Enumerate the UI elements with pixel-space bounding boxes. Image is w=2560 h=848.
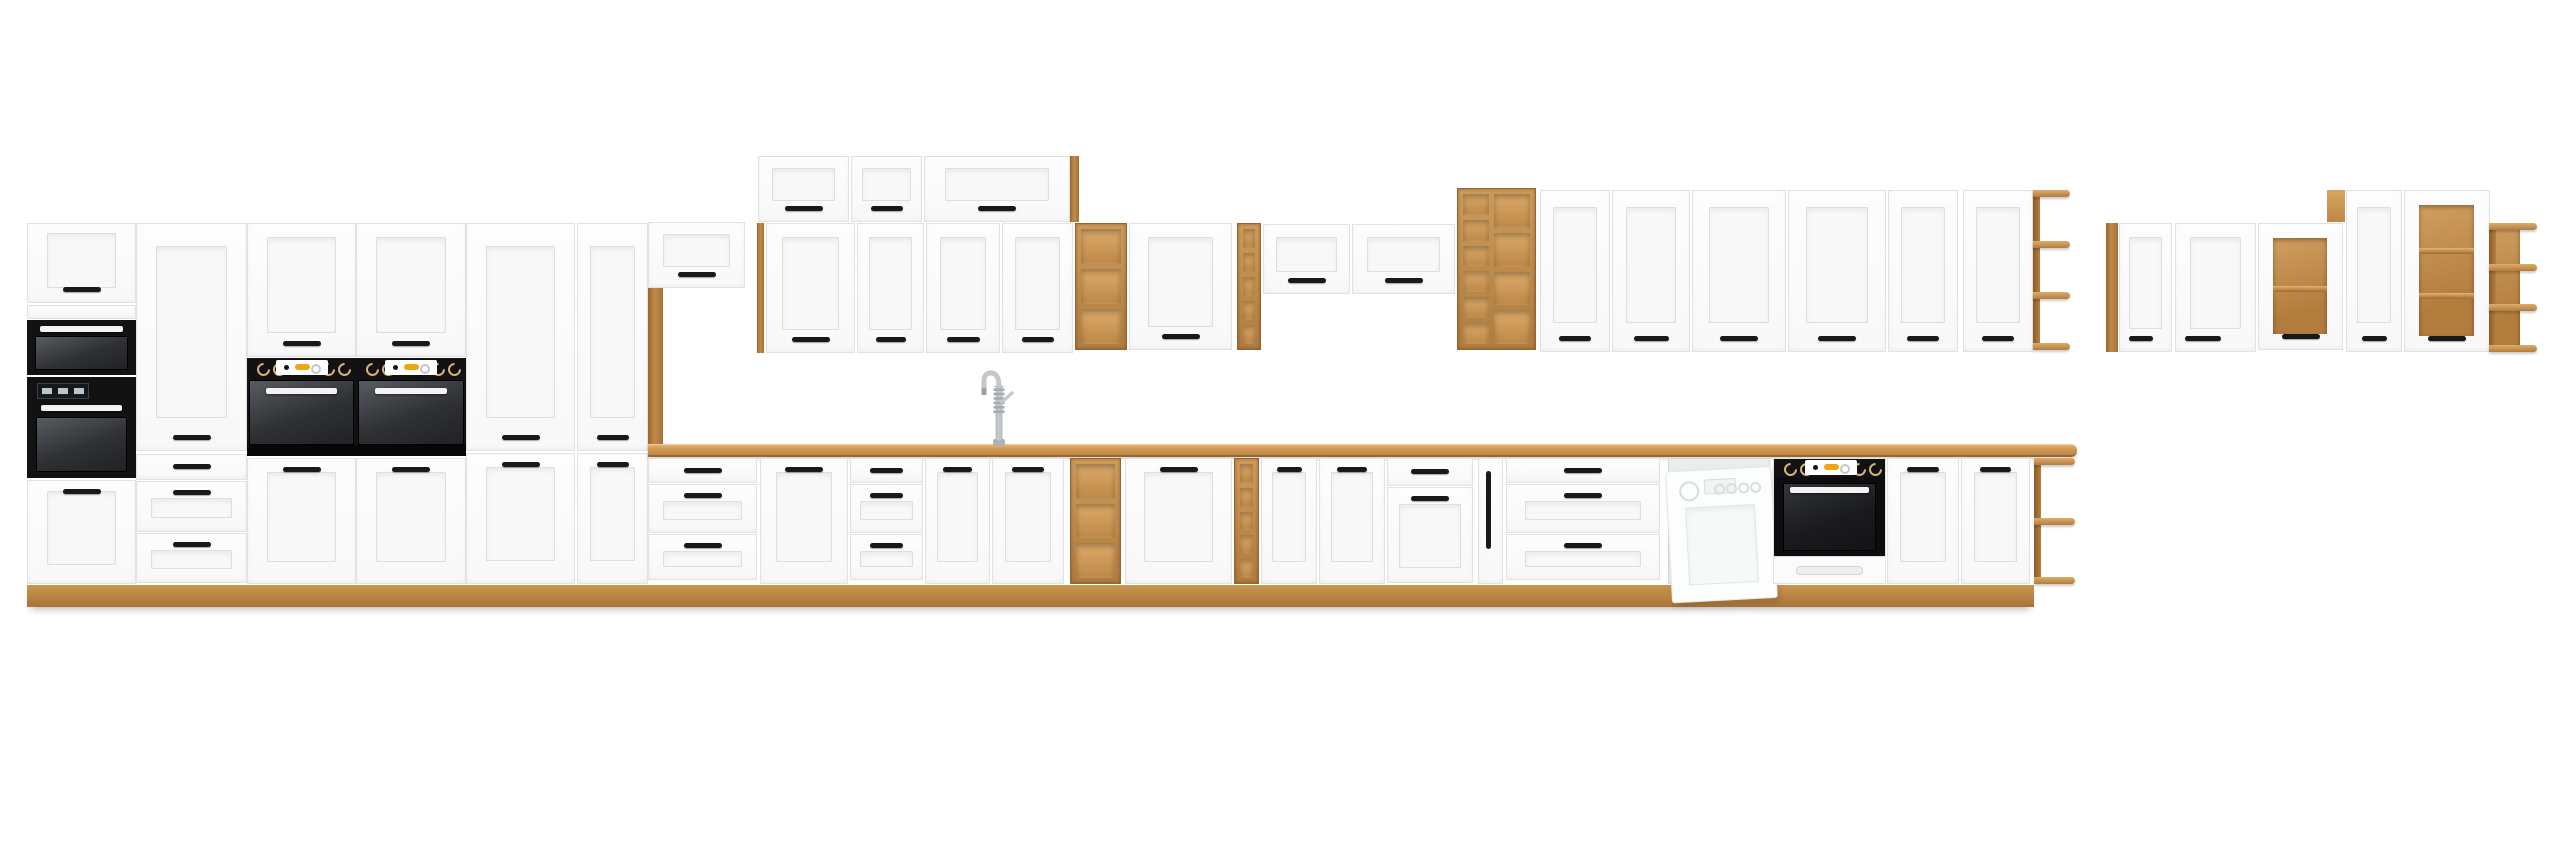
display-segment	[74, 388, 84, 394]
bar-handle-icon	[173, 435, 211, 440]
bar-handle-icon	[1411, 469, 1449, 474]
door-panel	[1367, 237, 1440, 272]
shelf-cubby	[1243, 229, 1255, 248]
shelf-cubby	[1081, 229, 1121, 264]
door-panel	[940, 237, 986, 330]
bar-handle-icon	[684, 468, 722, 473]
door-panel	[1144, 472, 1213, 562]
oven-door-glass	[1783, 483, 1876, 551]
door-panel	[1974, 472, 2017, 562]
wall-door-11	[1963, 190, 2033, 352]
door-panel	[1399, 504, 1461, 568]
shelf-board	[2033, 190, 2070, 197]
bar-handle-icon	[1982, 336, 2014, 341]
bar-handle-icon	[947, 337, 980, 342]
door-panel	[1976, 207, 2020, 323]
oven-handle-bar	[266, 388, 337, 394]
drawer-front	[1387, 487, 1473, 583]
wall-door-9	[1788, 190, 1886, 352]
base-door-1	[760, 458, 848, 584]
microwave-door-glass	[35, 336, 128, 370]
glass-shelf	[2419, 248, 2474, 254]
shelf-column	[1076, 464, 1115, 578]
drawer-front	[1387, 458, 1473, 486]
wall-rack-1	[1237, 223, 1261, 350]
recessed-grip	[1796, 566, 1863, 575]
bar-handle-icon	[1564, 493, 1602, 498]
wall-door-3	[926, 223, 1000, 353]
door-panel	[945, 168, 1049, 201]
bar-handle-icon	[283, 467, 321, 472]
base-rack-1	[1234, 458, 1259, 584]
bar-handle-icon	[173, 464, 211, 469]
bar-handle-icon	[1564, 543, 1602, 548]
bar-handle-icon	[502, 435, 540, 440]
bar-handle-icon	[1288, 278, 1326, 283]
shelf-cubby	[1243, 277, 1255, 296]
oven-knob-icon	[445, 360, 463, 378]
bar-handle-icon	[785, 467, 823, 472]
bar-handle-icon	[1720, 336, 1758, 341]
bar-handle-icon	[1337, 467, 1367, 472]
tall-a3-oven	[247, 358, 356, 456]
fr-glass-cab-1	[2258, 223, 2343, 350]
door-panel	[862, 168, 911, 201]
bar-handle-icon	[2362, 336, 2387, 341]
shelf-column	[1240, 464, 1253, 578]
shelf-column	[1494, 194, 1530, 344]
shelf-cubby	[1463, 194, 1489, 215]
door-panel	[1525, 501, 1641, 520]
door-panel	[486, 467, 555, 561]
faucet-icon	[979, 356, 1019, 446]
microwave-handle-bar	[40, 326, 123, 332]
tall-a4-door	[356, 223, 466, 357]
wall-door-5	[1129, 223, 1232, 350]
wall-door-10	[1888, 190, 1958, 352]
bar-handle-icon	[870, 493, 903, 498]
bar-handle-icon	[684, 493, 722, 498]
bar-handle-icon	[684, 543, 722, 548]
door-panel	[860, 501, 913, 520]
door-panel	[860, 551, 913, 567]
fr-corner-shelf	[2489, 223, 2537, 352]
door-panel	[151, 498, 232, 518]
bar-handle-icon	[785, 206, 823, 211]
shelf-board	[2034, 518, 2075, 525]
drawer-front	[648, 484, 757, 533]
drawer-front	[136, 481, 247, 532]
door-panel	[663, 551, 742, 567]
base-door-6	[1961, 458, 2030, 584]
tall-a1-top-door	[27, 223, 136, 303]
tall-a1-bottom-door	[27, 480, 136, 584]
door-panel	[156, 246, 227, 418]
fr-door-2	[2175, 223, 2256, 352]
tall-a2-door	[136, 223, 247, 451]
door-panel	[1806, 207, 1868, 323]
oven-control-panel	[356, 358, 466, 378]
dishwasher-door-panel	[1685, 504, 1759, 586]
bar-handle-icon	[2428, 336, 2466, 341]
bar-handle-icon	[597, 462, 629, 467]
shelf-board	[2489, 223, 2537, 230]
oven-control-panel	[1774, 459, 1885, 477]
tall-a5-bottom-door	[466, 453, 575, 584]
bar-handle-icon	[392, 341, 430, 346]
door-panel	[663, 234, 730, 267]
door-panel	[376, 472, 446, 562]
tall-a4-bottom-door	[356, 458, 466, 584]
bar-handle-icon	[1160, 467, 1198, 472]
bar-handle-icon	[871, 206, 903, 211]
drawer-front	[648, 458, 757, 483]
bar-handle-icon	[1634, 336, 1669, 341]
bar-handle-icon	[1818, 336, 1856, 341]
shelf-board	[2033, 343, 2070, 350]
door-panel	[1148, 237, 1213, 327]
wall-door-7	[1612, 190, 1690, 352]
bar-handle-icon	[1980, 467, 2011, 472]
bar-handle-icon	[943, 467, 972, 472]
fr-door-3	[2346, 190, 2402, 352]
door-panel	[151, 550, 232, 569]
door-panel	[376, 237, 446, 333]
shelf-cubby	[1243, 301, 1255, 320]
door-panel	[47, 233, 116, 288]
bar-handle-icon	[2129, 336, 2153, 341]
shelf-side-panel	[2489, 223, 2496, 352]
shelf-side-panel	[2033, 190, 2040, 350]
base-drawers-1	[648, 458, 757, 584]
oven-knob-icon	[254, 360, 272, 378]
bar-handle-icon	[1411, 496, 1449, 501]
shelf-board	[2034, 577, 2075, 584]
oven-knob-icon	[1866, 460, 1884, 478]
shelf-cubby	[1463, 220, 1489, 241]
oven-door-glass	[249, 380, 354, 445]
display-segment	[58, 388, 68, 394]
shelf-cubby	[1076, 464, 1115, 499]
fr-door-1	[2119, 223, 2172, 352]
wall-hcab-2	[1352, 224, 1455, 294]
fr-oak-filler	[2327, 190, 2345, 222]
wall-door-2	[857, 223, 924, 353]
oven-knob-icon	[363, 360, 381, 378]
wall-corner-shelf	[2033, 190, 2070, 350]
cargo-handle	[1486, 471, 1491, 549]
shelf-cubby	[1494, 194, 1530, 228]
drawer-front	[850, 484, 923, 533]
dishwasher-button-icon	[1738, 482, 1750, 494]
door-panel	[590, 467, 635, 561]
door-panel	[1015, 237, 1060, 330]
display-ring-icon	[1840, 464, 1850, 474]
shelf-board	[2033, 241, 2070, 248]
door-panel	[869, 237, 912, 330]
door-panel	[1272, 472, 1306, 562]
bar-handle-icon	[978, 206, 1016, 211]
shelf-cubby	[1463, 297, 1489, 318]
wall-oak-side	[757, 223, 764, 353]
sink-door-right	[992, 458, 1064, 584]
display-ring-icon	[311, 364, 321, 374]
drawer-front	[1506, 484, 1660, 533]
door-panel	[590, 246, 635, 418]
shelf-cubby	[1240, 512, 1253, 531]
door-panel	[1709, 207, 1769, 323]
niche-oak-pillar	[648, 288, 663, 444]
bar-handle-icon	[1385, 278, 1423, 283]
door-panel	[937, 472, 978, 562]
base-drawers-3	[1506, 458, 1660, 584]
base-cargo-pullout	[1478, 458, 1503, 584]
dishwasher-button-icon	[1726, 483, 1738, 495]
door-panel	[2129, 237, 2162, 329]
glass-shelf	[2273, 286, 2327, 292]
door-panel	[772, 168, 835, 201]
door-panel	[1900, 472, 1946, 562]
upper-oak-panel	[1070, 156, 1079, 222]
pantry-bottom-door	[577, 453, 648, 584]
bar-handle-icon	[173, 542, 211, 547]
oven-knob-icon	[1781, 460, 1799, 478]
wall-door-4	[1002, 223, 1073, 353]
display-ring-icon	[420, 364, 430, 374]
oven-handle-bar	[375, 388, 447, 394]
door-panel	[1901, 207, 1945, 323]
shelf-cubby	[1463, 323, 1489, 344]
worktop	[648, 444, 2077, 457]
wall-door-6	[1540, 190, 1610, 352]
door-panel	[776, 472, 832, 562]
drawer-front	[136, 533, 247, 583]
oven-display	[276, 360, 328, 375]
shelf-column	[1081, 229, 1121, 344]
door-panel	[47, 491, 116, 565]
base-drawers-2	[850, 458, 923, 584]
shelf-cubby	[1076, 543, 1115, 578]
oven-handle-bar	[41, 405, 122, 411]
shelf-cubby	[1081, 309, 1121, 344]
door-panel	[267, 237, 336, 333]
shelf-board	[2489, 264, 2537, 271]
glass-opening	[2273, 238, 2327, 334]
wall-door-1	[766, 223, 855, 353]
shelf-cubby	[1240, 488, 1253, 507]
base-oven	[1773, 458, 1886, 584]
oven-display	[37, 383, 89, 399]
door-panel	[1525, 551, 1641, 567]
niche-bridge-cabinet	[648, 222, 745, 288]
shelf-cubby	[1494, 233, 1530, 267]
oven-lower-strip	[1774, 556, 1885, 583]
wall-open-shelf-1	[1075, 223, 1127, 350]
shelf-cubby	[1240, 535, 1253, 554]
base-door-5	[1887, 458, 1959, 584]
display-segment	[42, 388, 52, 394]
door-panel	[1005, 472, 1051, 562]
shelf-cubby	[1081, 269, 1121, 304]
bar-handle-icon	[1162, 334, 1200, 339]
tall-a1-oven	[27, 377, 136, 478]
dishwasher-button-icon	[1750, 482, 1762, 494]
door-panel	[1331, 472, 1373, 562]
dishwasher-door	[1665, 466, 1778, 603]
shelf-cubby	[1494, 310, 1530, 344]
drawer-front	[648, 534, 757, 580]
bar-handle-icon	[2282, 334, 2320, 339]
bar-handle-icon	[1564, 468, 1602, 473]
door-panel	[267, 472, 336, 562]
drawer-front	[850, 458, 923, 483]
sink-door-left	[925, 458, 990, 584]
drawer-front	[850, 534, 923, 580]
bar-handle-icon	[1559, 336, 1591, 341]
glass-opening	[2419, 205, 2474, 336]
oven-handle-bar	[1790, 487, 1869, 493]
tall-a3-bottom-door	[247, 458, 356, 584]
bar-handle-icon	[1277, 467, 1302, 472]
sink-faucet	[979, 356, 1019, 446]
base-door-2	[1125, 458, 1232, 584]
kitchen-product-render	[0, 0, 2560, 848]
bar-handle-icon	[392, 467, 430, 472]
fr-glass-cab-2	[2404, 190, 2490, 352]
oven-bottom-trim	[356, 445, 466, 456]
dishwasher-dial-icon	[1679, 481, 1700, 502]
door-panel	[1626, 207, 1676, 323]
shelf-board	[2489, 304, 2537, 311]
pantry-door	[577, 223, 648, 451]
shelf-cubby	[1240, 464, 1253, 483]
tall-a1-microwave	[27, 320, 136, 375]
upper-cab-3	[924, 156, 1070, 222]
shelf-cubby	[1240, 559, 1253, 578]
bar-handle-icon	[63, 287, 101, 292]
base-open-shelf-1	[1070, 458, 1121, 584]
shelf-cubby	[1463, 246, 1489, 267]
drawer-front	[1506, 458, 1660, 483]
door-panel	[663, 501, 742, 520]
oven-knob-icon	[335, 360, 353, 378]
drawer-front	[1506, 534, 1660, 580]
bar-handle-icon	[870, 543, 903, 548]
bar-handle-icon	[1907, 467, 1939, 472]
shelf-board	[2489, 345, 2537, 352]
door-panel	[1276, 237, 1337, 272]
door-panel	[1553, 207, 1597, 323]
oven-door	[1774, 477, 1885, 559]
upper-cab-2	[851, 156, 922, 222]
shelf-cubby	[1243, 253, 1255, 272]
tall-a1-fixed-strip	[27, 305, 136, 319]
bar-handle-icon	[597, 435, 629, 440]
shelf-cubby	[1243, 325, 1255, 344]
fr-oak-panel	[2106, 223, 2118, 352]
base-drawer-door	[1387, 458, 1473, 584]
bar-handle-icon	[1022, 337, 1054, 342]
bar-handle-icon	[1907, 336, 1939, 341]
shelf-board	[2034, 458, 2075, 465]
bar-handle-icon	[792, 337, 830, 342]
bar-handle-icon	[876, 337, 906, 342]
oven-bottom-trim	[247, 445, 356, 456]
bar-handle-icon	[63, 489, 101, 494]
tall-a4-oven	[356, 358, 466, 456]
base-door-3	[1261, 458, 1317, 584]
shelf-column	[1463, 194, 1489, 344]
wall-door-8	[1692, 190, 1786, 352]
oven-door-glass	[36, 417, 127, 472]
door-panel	[486, 246, 555, 418]
tall-a2-drawers	[136, 454, 247, 584]
bar-handle-icon	[173, 490, 211, 495]
door-panel	[2190, 237, 2241, 329]
door-panel	[782, 237, 839, 330]
tall-a5-door	[466, 223, 575, 451]
bar-handle-icon	[678, 272, 716, 277]
base-corner-shelf	[2034, 458, 2075, 584]
bar-handle-icon	[1012, 467, 1044, 472]
drawer-front	[136, 454, 247, 480]
shelf-column	[1243, 229, 1255, 344]
door-panel	[2357, 207, 2391, 323]
bar-handle-icon	[870, 468, 903, 473]
oven-door-glass	[358, 380, 464, 445]
glass-shelf	[2419, 293, 2474, 299]
shelf-cubby	[1076, 504, 1115, 539]
oven-display	[1805, 460, 1857, 475]
dishwasher	[1668, 458, 1770, 584]
wall-hcab-1	[1263, 224, 1350, 294]
shelf-cubby	[1494, 272, 1530, 306]
bar-handle-icon	[502, 462, 540, 467]
tall-a3-door	[247, 223, 356, 357]
wall-open-shelf-2	[1457, 188, 1536, 350]
oven-control-panel	[247, 358, 356, 378]
base-door-4	[1319, 458, 1385, 584]
bar-handle-icon	[283, 341, 321, 346]
shelf-board	[2033, 292, 2070, 299]
shelf-cubby	[1463, 271, 1489, 292]
oven-display	[385, 360, 437, 375]
bar-handle-icon	[2185, 336, 2221, 341]
upper-cab-1	[758, 156, 849, 222]
